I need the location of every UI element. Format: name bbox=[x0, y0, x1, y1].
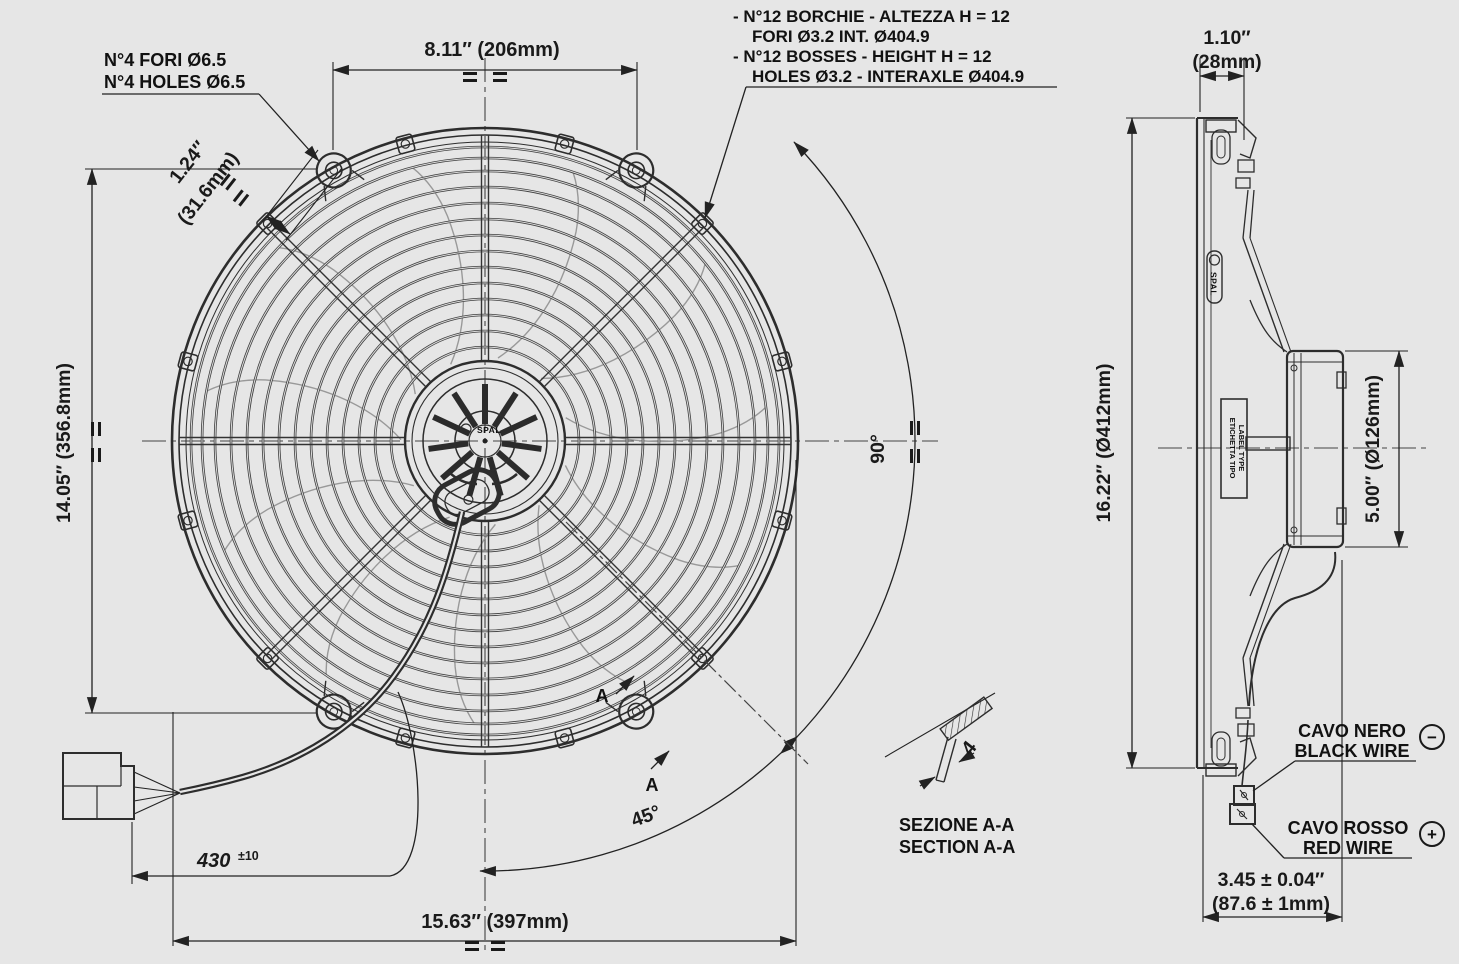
bosses-label-line2: FORI Ø3.2 INT. Ø404.9 bbox=[752, 27, 930, 46]
angle-45-text: 45° bbox=[628, 801, 663, 832]
cable-length-value: 430 bbox=[196, 850, 230, 872]
angle-90-text: 90° bbox=[867, 434, 889, 464]
section-title-line1: SEZIONE A-A bbox=[899, 815, 1014, 835]
plus-symbol: + bbox=[1427, 825, 1437, 844]
side-logo-text: SPAL bbox=[1209, 272, 1219, 296]
dim-overall-text: 15.63″ (397mm) bbox=[421, 911, 568, 933]
black-wire-line1: CAVO NERO bbox=[1298, 721, 1406, 741]
motor bbox=[1246, 351, 1346, 706]
minus-polarity-icon: − bbox=[1420, 725, 1444, 749]
section-detail: 4 SEZIONE A-A SECTION A-A bbox=[885, 693, 1015, 857]
dim-total-line1: 3.45 ± 0.04″ bbox=[1218, 869, 1325, 891]
spal-side-logo: SPAL bbox=[1207, 251, 1222, 303]
holes-label-line2: N°4 HOLES Ø6.5 bbox=[104, 72, 245, 92]
minus-symbol: − bbox=[1427, 728, 1437, 747]
fan-technical-drawing: SPAL N° bbox=[0, 0, 1459, 964]
dim-left-text: 14.05″ (356.8mm) bbox=[53, 363, 75, 523]
connector bbox=[63, 753, 134, 819]
bosses-label-line1: - N°12 BORCHIE - ALTEZZA H = 12 bbox=[733, 7, 1010, 26]
dim-diameter: 16.22″ (Ø412mm) bbox=[1093, 118, 1195, 768]
dim-diameter-text: 16.22″ (Ø412mm) bbox=[1093, 364, 1115, 523]
red-wire-line2: RED WIRE bbox=[1303, 838, 1393, 858]
red-wire-line1: CAVO ROSSO bbox=[1288, 818, 1409, 838]
cable-length-tolerance: ±10 bbox=[238, 849, 259, 863]
dim-hole-offset: 1.24″ (31.6mm) bbox=[165, 137, 342, 240]
side-view: SPAL ETICHETTA TIPO LABEL TYPE bbox=[1158, 118, 1428, 824]
bosses-label-line4: HOLES Ø3.2 - INTERAXLE Ø404.9 bbox=[752, 67, 1024, 86]
dim-depth-line2: (28mm) bbox=[1192, 51, 1261, 73]
bosses-callout: - N°12 BORCHIE - ALTEZZA H = 12 FORI Ø3.… bbox=[705, 7, 1057, 218]
holes-callout: N°4 FORI Ø6.5 N°4 HOLES Ø6.5 bbox=[102, 50, 319, 161]
section-thickness: 4 bbox=[957, 736, 982, 759]
dim-depth-line1: 1.10″ bbox=[1203, 27, 1250, 49]
dim-top-text: 8.11″ (206mm) bbox=[424, 39, 559, 61]
section-letter-2: A bbox=[646, 775, 659, 795]
dim-depth: 1.10″ (28mm) bbox=[1192, 27, 1261, 140]
bosses-label-line3: - N°12 BOSSES - HEIGHT H = 12 bbox=[733, 47, 992, 66]
power-cable bbox=[134, 512, 462, 814]
type-label: ETICHETTA TIPO LABEL TYPE bbox=[1221, 399, 1247, 498]
dim-motor-text: 5.00″ (Ø126mm) bbox=[1362, 375, 1384, 523]
dim-top-width: 8.11″ (206mm) bbox=[333, 39, 637, 150]
black-wire-line2: BLACK WIRE bbox=[1295, 741, 1410, 761]
side-dimensions: 1.10″ (28mm) 16.22″ (Ø412mm) 5.00″ (Ø126… bbox=[1093, 27, 1444, 922]
section-title-line2: SECTION A-A bbox=[899, 837, 1015, 857]
type-label-line2: LABEL TYPE bbox=[1237, 425, 1246, 472]
dim-cable-length: 430 ±10 bbox=[132, 692, 418, 884]
red-wire-callout: CAVO ROSSO RED WIRE + bbox=[1252, 818, 1444, 858]
plus-polarity-icon: + bbox=[1420, 822, 1444, 846]
dim-total-line2: (87.6 ± 1mm) bbox=[1212, 893, 1330, 915]
section-letter-1: A bbox=[596, 686, 609, 706]
holes-label-line1: N°4 FORI Ø6.5 bbox=[104, 50, 226, 70]
dim-motor: 5.00″ (Ø126mm) bbox=[1345, 351, 1408, 547]
hub-logo-text: SPAL bbox=[477, 425, 501, 435]
black-wire-callout: CAVO NERO BLACK WIRE − bbox=[1253, 721, 1444, 791]
type-label-line1: ETICHETTA TIPO bbox=[1228, 418, 1237, 479]
